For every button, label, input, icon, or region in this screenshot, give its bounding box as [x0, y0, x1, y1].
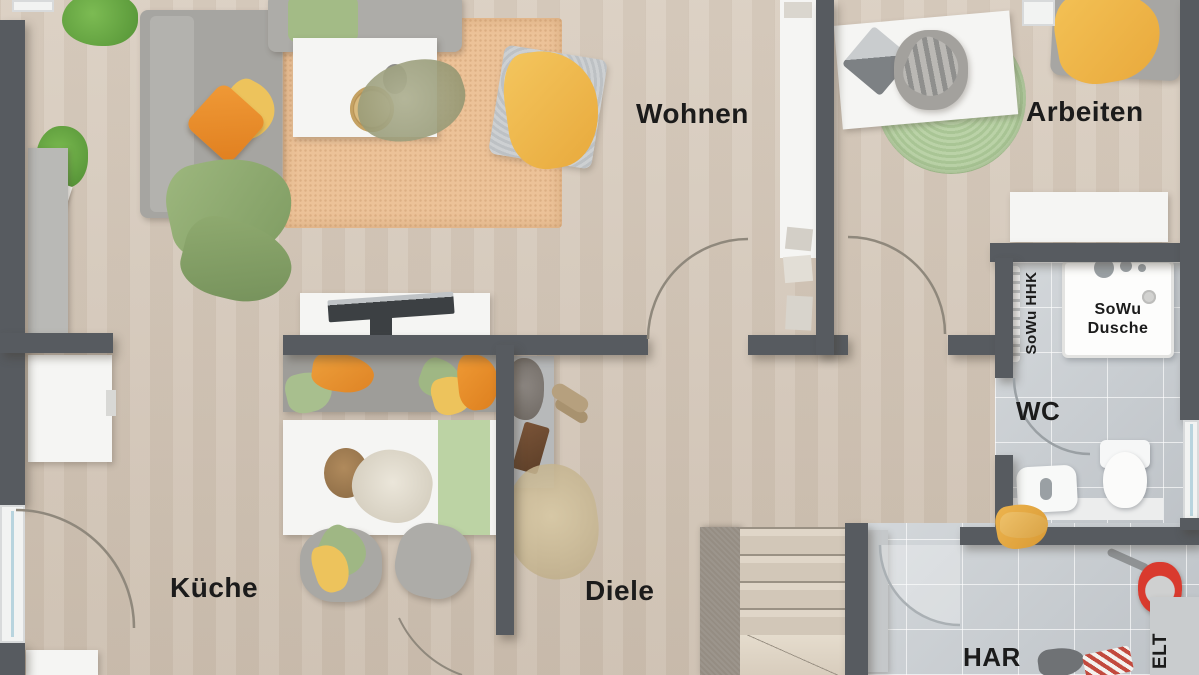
wall-west-lower [0, 643, 25, 675]
bookshelf [780, 0, 816, 258]
label-sowu-hhk: SoWu HHK [1023, 253, 1049, 373]
terrace-door-window [0, 505, 25, 643]
wall-living-south [283, 335, 648, 355]
window-east-glass [1190, 424, 1193, 516]
window-glass [11, 511, 14, 638]
wall-living-east [816, 0, 834, 355]
floor-plan: Wohnen Arbeiten Küche Diele WC HAR SoWu … [0, 0, 1199, 675]
label-har: HAR [963, 642, 1021, 673]
books-2 [783, 255, 813, 283]
wall-utility-west [845, 523, 868, 675]
stair-stringer [700, 527, 740, 675]
wall-east-lower [1180, 518, 1199, 530]
books-3 [785, 295, 813, 330]
label-diele: Diele [585, 575, 654, 607]
window-north-west [12, 0, 54, 12]
table-runner [438, 420, 490, 535]
books-1 [785, 227, 813, 252]
lowboard [1010, 192, 1168, 242]
chaise-cushion [288, 0, 358, 42]
wall-east-upper [1180, 0, 1199, 420]
wall-bath-west-upper [995, 258, 1013, 378]
wall-bath-north [990, 243, 1199, 262]
wall-west-upper [0, 20, 25, 505]
label-kueche: Küche [170, 572, 258, 604]
stair-treads [740, 527, 845, 635]
sideboard [28, 148, 68, 338]
side-table [26, 650, 98, 675]
label-wohnen: Wohnen [636, 98, 749, 130]
label-wc: WC [1016, 396, 1060, 427]
refrigerator [28, 355, 112, 462]
sponge [1000, 512, 1048, 538]
label-arbeiten: Arbeiten [1026, 96, 1144, 128]
wall-kitchen-west [0, 333, 113, 353]
label-elt: ELT [1150, 611, 1176, 675]
label-sowu-dusche-line1: SoWu [1078, 300, 1158, 319]
wall-kitchen-east [496, 345, 514, 635]
label-sowu-dusche-line2: Dusche [1078, 319, 1158, 338]
radiator-top [1022, 0, 1055, 26]
monitor-stand [370, 318, 392, 336]
label-sowu-dusche: SoWu Dusche [1078, 300, 1158, 338]
stair-winders [740, 635, 845, 675]
toilet [1103, 452, 1147, 508]
basin-faucet [1040, 478, 1052, 500]
books-top [784, 2, 812, 18]
window-east [1183, 420, 1199, 520]
refrigerator-handle [106, 390, 116, 416]
